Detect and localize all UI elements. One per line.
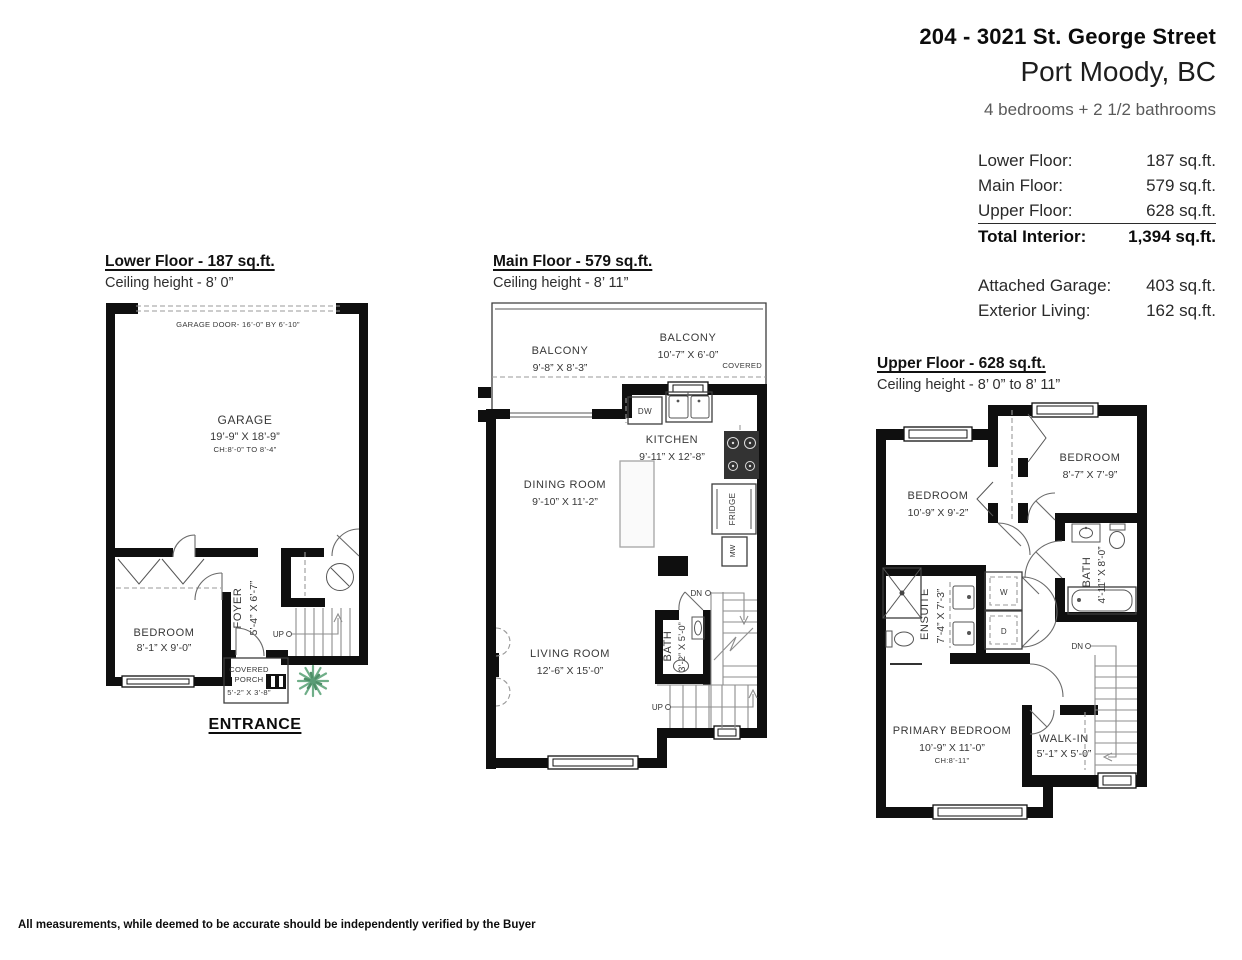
area-row-total: Total Interior: 1,394 sq.ft. bbox=[978, 224, 1216, 249]
bedroom-name: BEDROOM bbox=[1059, 452, 1120, 464]
bath-toilet-icon bbox=[1110, 524, 1126, 549]
area-label: Attached Garage: bbox=[978, 273, 1111, 298]
area-summary-table: Lower Floor: 187 sq.ft. Main Floor: 579 … bbox=[978, 148, 1216, 323]
kitchen-name: KITCHEN bbox=[646, 434, 698, 446]
area-row-garage: Attached Garage: 403 sq.ft. bbox=[978, 273, 1216, 298]
upper-floor-title-block: Upper Floor - 628 sq.ft. Ceiling height … bbox=[877, 355, 1060, 393]
lower-floor-title-block: Lower Floor - 187 sq.ft. Ceiling height … bbox=[105, 253, 275, 291]
balcony-name: BALCONY bbox=[532, 345, 589, 357]
kitchen-island bbox=[620, 461, 654, 547]
listing-header: 204 - 3021 St. George Street Port Moody,… bbox=[919, 24, 1216, 120]
area-label: Lower Floor: bbox=[978, 148, 1072, 173]
upper-floor-plan: BEDROOM 8’-7” X 7’-9” BEDROOM 10’-9” X 9… bbox=[863, 395, 1158, 835]
bedroom-dims: 8’-7” X 7’-9” bbox=[1063, 469, 1118, 481]
lower-stairs bbox=[287, 608, 351, 656]
upper-floor-ceiling: Ceiling height - 8’ 0” to 8’ 11” bbox=[877, 377, 1060, 393]
foyer-label: FOYER 5’-4” X 6’-7” bbox=[232, 580, 260, 635]
area-value: 628 sq.ft. bbox=[1146, 198, 1216, 223]
area-label: Exterior Living: bbox=[978, 298, 1090, 323]
covered-porch: COVERED PORCH 5’-2” X 3’-8” bbox=[224, 658, 288, 703]
area-row-upper: Upper Floor: 628 sq.ft. bbox=[978, 198, 1216, 224]
upper-door-arcs bbox=[998, 493, 1063, 734]
bedroom-closet bbox=[116, 559, 221, 588]
dryer-label: D bbox=[1001, 627, 1007, 636]
area-label: Upper Floor: bbox=[978, 198, 1072, 223]
area-label: Main Floor: bbox=[978, 173, 1063, 198]
porch-line1: COVERED bbox=[229, 665, 269, 674]
bedroom-name: BEDROOM bbox=[907, 490, 968, 502]
microwave-icon: MW bbox=[722, 537, 747, 566]
main-dn-label: DN bbox=[690, 589, 702, 598]
foyer-name: FOYER bbox=[232, 588, 244, 629]
area-value: 579 sq.ft. bbox=[1146, 173, 1216, 198]
main-floor-ceiling: Ceiling height - 8’ 11” bbox=[493, 275, 652, 291]
dining-label: DINING ROOM 9’-10” X 11’-2” bbox=[524, 479, 606, 508]
balcony-left-label: BALCONY 9’-8” X 8’-3” bbox=[532, 345, 589, 374]
washer-label: W bbox=[1000, 588, 1008, 597]
bedroom-window bbox=[122, 676, 194, 687]
area-value: 162 sq.ft. bbox=[1146, 298, 1216, 323]
balcony-dims: 9’-8” X 8’-3” bbox=[533, 362, 588, 374]
balcony-right-label: BALCONY 10’-7” X 6’-0” COVERED bbox=[658, 332, 763, 370]
kitchen-label: KITCHEN 9’-11” X 12’-8” bbox=[639, 434, 705, 463]
entrance-label: ENTRANCE bbox=[198, 716, 312, 734]
main-bath: BATH 3’-2” X 5’-0” bbox=[662, 592, 704, 672]
plant-icon bbox=[298, 666, 328, 696]
porch-post-icon bbox=[266, 674, 286, 689]
bedroom-left-label: BEDROOM 10’-9” X 9’-2” bbox=[907, 490, 968, 519]
bedroom-name: BEDROOM bbox=[133, 627, 194, 639]
main-floor-title: Main Floor - 579 sq.ft. bbox=[493, 253, 652, 271]
garage-door-label: GARAGE DOOR- 16’-0” BY 6’-10” bbox=[176, 320, 300, 329]
lower-floor-ceiling: Ceiling height - 8’ 0” bbox=[105, 275, 275, 291]
balcony-dims: 10’-7” X 6’-0” bbox=[658, 349, 719, 361]
laundry: W D bbox=[985, 572, 1022, 649]
dining-dims: 9’-10” X 11’-2” bbox=[532, 496, 598, 508]
primary-bedroom-label: PRIMARY BEDROOM 10’-9” X 11’-0” CH:8’-11… bbox=[893, 725, 1012, 765]
water-tank-icon bbox=[327, 564, 354, 591]
area-row-main: Main Floor: 579 sq.ft. bbox=[978, 173, 1216, 198]
up-marker bbox=[666, 705, 671, 710]
main-floor-title-block: Main Floor - 579 sq.ft. Ceiling height -… bbox=[493, 253, 652, 291]
bath-vanity-icon bbox=[1072, 524, 1100, 542]
ensuite: ENSUITE 7’-4” X 7’-3” bbox=[883, 568, 974, 664]
garage-door bbox=[136, 306, 340, 311]
kitchen-fixtures: DW FRIDGE bbox=[620, 392, 759, 566]
bath-dims: 3’-2” X 5’-0” bbox=[677, 622, 688, 672]
living-dims: 12’-6” X 15’-0” bbox=[537, 665, 604, 677]
ensuite-name: ENSUITE bbox=[919, 588, 931, 640]
area-row-exterior: Exterior Living: 162 sq.ft. bbox=[978, 298, 1216, 323]
area-row-lower: Lower Floor: 187 sq.ft. bbox=[978, 148, 1216, 173]
porch-line2: PORCH bbox=[235, 675, 264, 684]
lower-up-label: UP bbox=[273, 630, 284, 639]
main-floor-plan: BALCONY 9’-8” X 8’-3” BALCONY 10’-7” X 6… bbox=[478, 295, 773, 775]
lower-floor-title: Lower Floor - 187 sq.ft. bbox=[105, 253, 275, 271]
area-label: Total Interior: bbox=[978, 224, 1086, 249]
dishwasher-label: DW bbox=[638, 407, 652, 416]
porch-dims: 5’-2” X 3’-8” bbox=[227, 688, 271, 697]
area-value: 403 sq.ft. bbox=[1146, 273, 1216, 298]
dn-marker bbox=[1086, 644, 1091, 649]
fridge-label: FRIDGE bbox=[728, 493, 737, 526]
living-label: LIVING ROOM 12’-6” X 15’-0” bbox=[530, 648, 610, 677]
bath-name: BATH bbox=[662, 631, 674, 662]
ensuite-dims: 7’-4” X 7’-3” bbox=[935, 588, 947, 643]
foyer-dims: 5’-4” X 6’-7” bbox=[248, 580, 260, 635]
up-marker bbox=[287, 632, 292, 637]
living-name: LIVING ROOM bbox=[530, 648, 610, 660]
microwave-label: MW bbox=[730, 544, 737, 557]
fridge-icon: FRIDGE bbox=[712, 484, 756, 534]
lower-bedroom-label: BEDROOM 8’-1” X 9’-0” bbox=[133, 627, 194, 654]
ensuite-sink-icon bbox=[953, 586, 974, 645]
bath-dims: 4’-11” X 8’-0” bbox=[1097, 546, 1108, 603]
closet-column bbox=[977, 410, 1046, 520]
lower-floor-plan: GARAGE DOOR- 16’-0” BY 6’-10” GARAGE 19’… bbox=[95, 290, 395, 750]
kitchen-sink-icon bbox=[666, 392, 712, 422]
primary-dims: 10’-9” X 11’-0” bbox=[919, 742, 985, 754]
bedroom-right-label: BEDROOM 8’-7” X 7’-9” bbox=[1059, 452, 1120, 481]
balcony-name: BALCONY bbox=[660, 332, 717, 344]
floorplan-page: 204 - 3021 St. George Street Port Moody,… bbox=[0, 0, 1242, 960]
upper-bath: BATH 4’-11” X 8’-0” bbox=[1068, 524, 1136, 614]
listing-city: Port Moody, BC bbox=[919, 56, 1216, 88]
garage-room-label: GARAGE 19’-9” X 18’-9” CH:8’-0” TO 8’-4” bbox=[210, 413, 280, 454]
kitchen-dims: 9’-11” X 12’-8” bbox=[639, 451, 705, 463]
walkin-closet: WALK-IN 5’-1” X 5’-0” bbox=[1037, 712, 1092, 770]
area-value: 187 sq.ft. bbox=[1146, 148, 1216, 173]
stairs-window bbox=[714, 726, 740, 739]
upper-floor-title: Upper Floor - 628 sq.ft. bbox=[877, 355, 1060, 373]
walkin-name: WALK-IN bbox=[1039, 733, 1089, 745]
living-window bbox=[548, 756, 638, 769]
listing-bed-bath-summary: 4 bedrooms + 2 1/2 bathrooms bbox=[919, 100, 1216, 120]
bath-sink-icon bbox=[692, 617, 704, 639]
garage-name: GARAGE bbox=[218, 413, 273, 427]
dn-marker bbox=[706, 591, 711, 596]
walkin-dims: 5’-1” X 5’-0” bbox=[1037, 748, 1092, 760]
upper-dn-label: DN bbox=[1071, 642, 1083, 651]
garage-ceiling-height: CH:8’-0” TO 8’-4” bbox=[213, 445, 276, 454]
covered-label: COVERED bbox=[722, 361, 762, 370]
bedroom-dims: 10’-9” X 9’-2” bbox=[908, 507, 969, 519]
primary-name: PRIMARY BEDROOM bbox=[893, 725, 1012, 737]
area-value: 1,394 sq.ft. bbox=[1128, 224, 1216, 249]
main-up-label: UP bbox=[652, 703, 663, 712]
main-walls bbox=[478, 384, 767, 769]
garage-dims: 19’-9” X 18’-9” bbox=[210, 431, 280, 443]
listing-address: 204 - 3021 St. George Street bbox=[919, 24, 1216, 50]
balcony-slider-door bbox=[510, 407, 592, 421]
primary-ceiling-height: CH:8’-11” bbox=[935, 756, 970, 765]
stove-icon bbox=[724, 431, 759, 479]
bath-name: BATH bbox=[1081, 557, 1093, 588]
dining-name: DINING ROOM bbox=[524, 479, 606, 491]
disclaimer: All measurements, while deemed to be acc… bbox=[18, 919, 536, 931]
ensuite-toilet-icon bbox=[886, 631, 914, 647]
bedroom-dims: 8’-1” X 9’-0” bbox=[137, 642, 192, 654]
